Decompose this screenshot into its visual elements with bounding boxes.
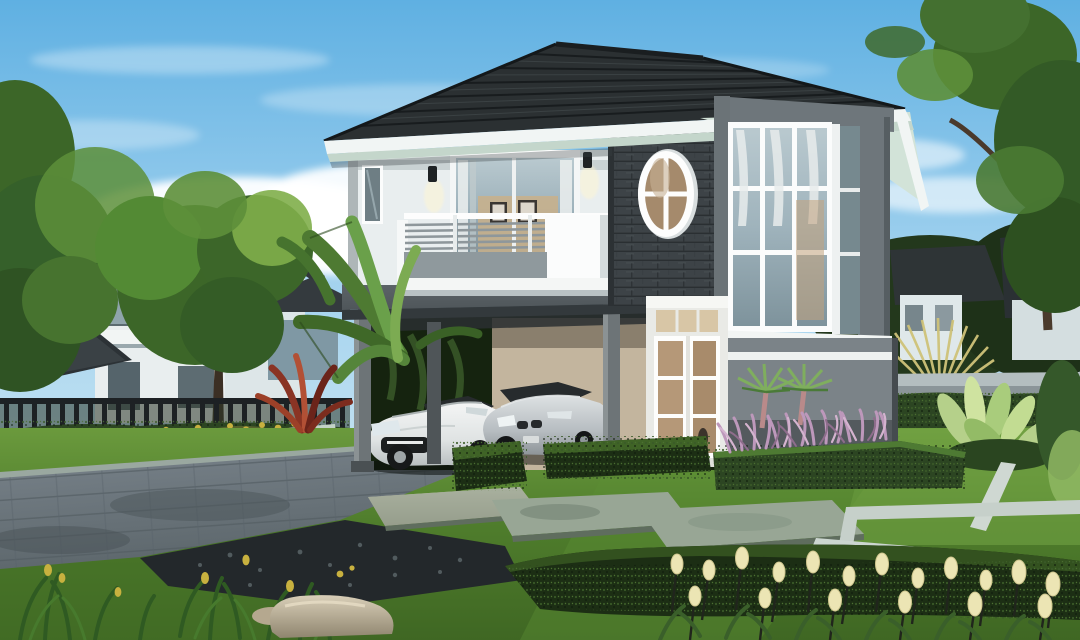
foreground-hedge [505, 545, 1080, 620]
oval-window [638, 149, 698, 239]
rendered-photo [0, 0, 1080, 640]
